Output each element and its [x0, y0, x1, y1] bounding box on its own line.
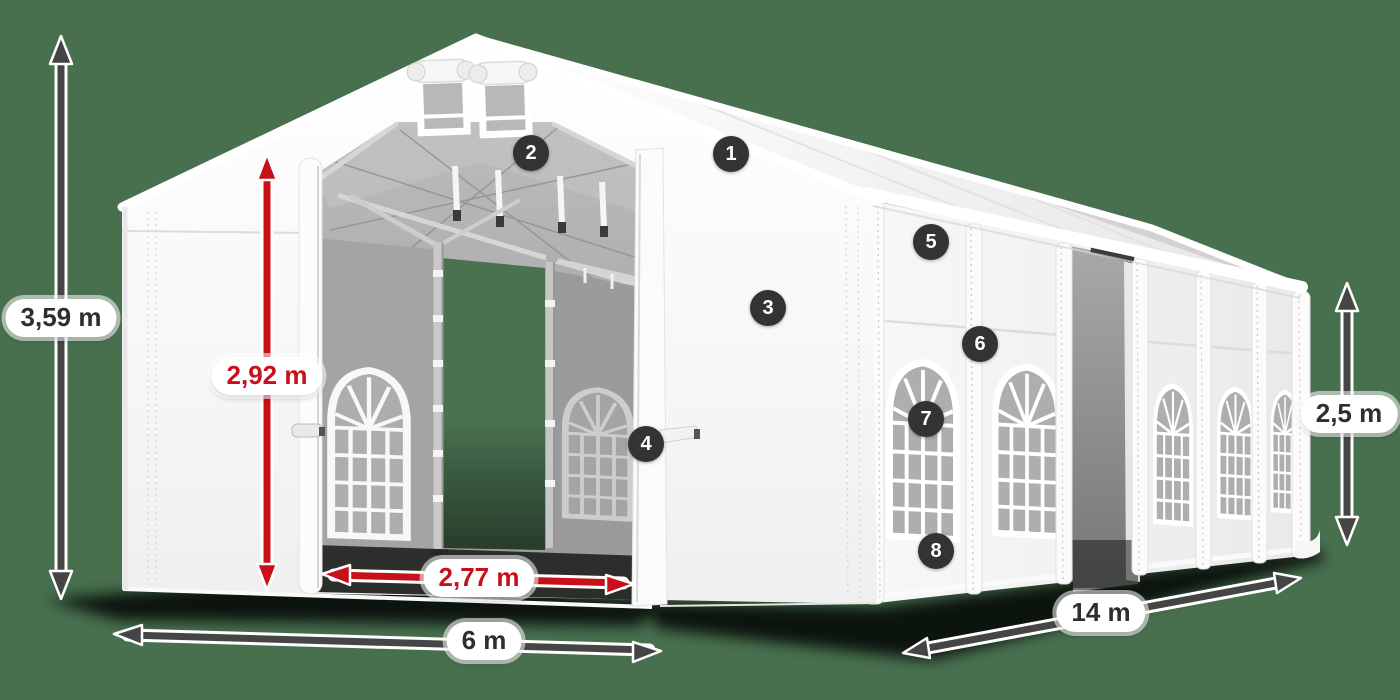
dimension-label-length: 14 m — [1056, 594, 1145, 632]
callout-2: 2 — [513, 135, 549, 171]
tent-dimension-diagram: 3,59 m 2,92 m 2,77 m 6 m 14 m 2,5 m 1 2 … — [0, 0, 1400, 700]
dimension-label-side-height: 2,5 m — [1301, 395, 1398, 433]
callout-1: 1 — [713, 136, 749, 172]
callout-6: 6 — [962, 326, 998, 362]
side-window — [995, 365, 1059, 536]
tent-illustration — [0, 0, 1400, 700]
callout-7: 7 — [908, 401, 944, 437]
dimension-label-entrance-width: 2,77 m — [424, 559, 535, 597]
side-window — [889, 361, 956, 540]
callout-3: 3 — [750, 290, 786, 326]
callout-8: 8 — [918, 533, 954, 569]
side-door-opening — [1070, 237, 1140, 592]
side-window — [1155, 385, 1191, 524]
door-handle — [292, 424, 322, 437]
dimension-label-total-height: 3,59 m — [6, 299, 117, 337]
front-entrance-opening — [313, 122, 656, 602]
callout-4: 4 — [628, 426, 664, 462]
arrow-width — [114, 625, 661, 662]
callout-5: 5 — [913, 224, 949, 260]
dimension-label-width: 6 m — [447, 622, 522, 660]
dimension-label-inner-height: 2,92 m — [212, 357, 323, 395]
side-window — [1219, 388, 1253, 518]
